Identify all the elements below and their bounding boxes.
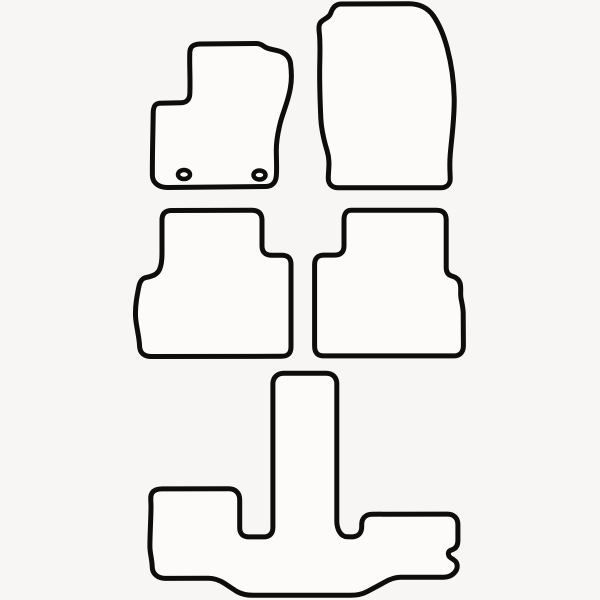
rear-long-third-row-mat [150, 373, 458, 595]
rear-right-mat [315, 210, 464, 356]
floor-mat-outlines [0, 0, 600, 600]
rear-left-mat [135, 210, 291, 356]
front-left-driver-mat [152, 44, 291, 188]
front-left-driver-mat-fixing-hole [178, 170, 190, 179]
car-mat-set-image [0, 0, 600, 600]
front-right-passenger-mat [319, 4, 454, 188]
front-left-driver-mat-fixing-hole [254, 171, 266, 180]
